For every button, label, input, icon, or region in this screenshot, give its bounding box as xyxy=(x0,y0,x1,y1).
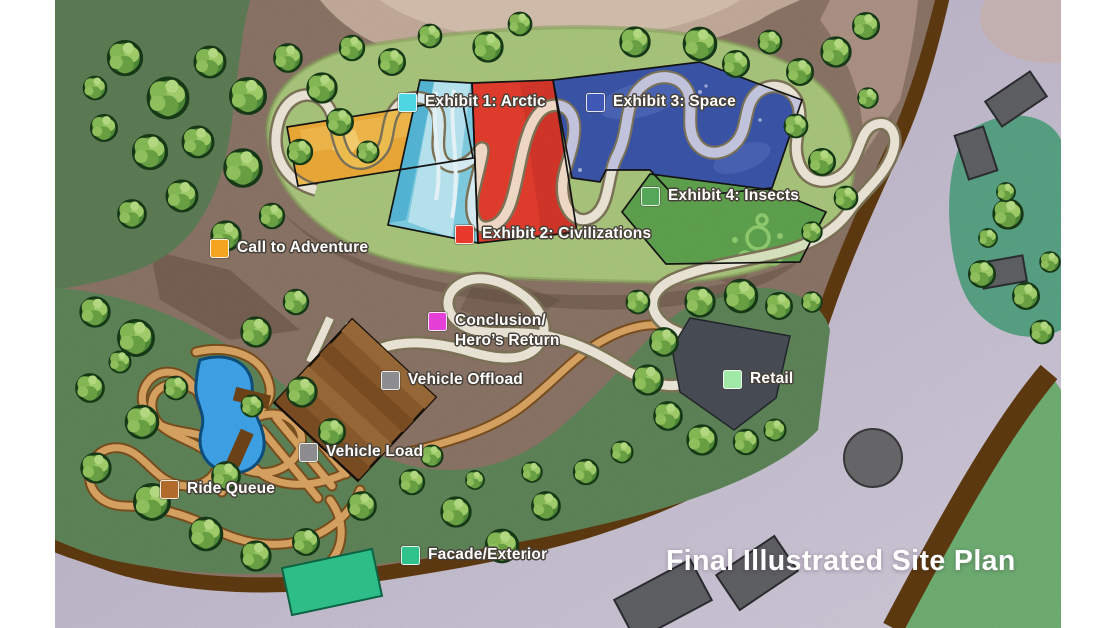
legend-item-exhibit-1-arctic: Exhibit 1: Arctic xyxy=(398,93,546,112)
legend-swatch xyxy=(398,93,417,112)
legend-item-vehicle-offload: Vehicle Offload xyxy=(381,371,523,390)
legend-label-line2: Hero’s Return xyxy=(455,332,560,349)
legend-label: Vehicle Load xyxy=(326,443,423,460)
legend-label: Exhibit 3: Space xyxy=(613,93,736,110)
legend-label: Exhibit 1: Arctic xyxy=(425,93,546,110)
legend-swatch xyxy=(428,312,447,331)
legend-swatch xyxy=(401,546,420,565)
legend-label: Vehicle Offload xyxy=(408,371,523,388)
legend-item-exhibit-2-civilizations: Exhibit 2: Civilizations xyxy=(455,225,651,244)
legend-item-call-to-adventure: Call to Adventure xyxy=(210,239,368,258)
legend-label-line1: Conclusion/ xyxy=(455,312,546,329)
legend-swatch xyxy=(381,371,400,390)
legend-item-exhibit-4-insects: Exhibit 4: Insects xyxy=(641,187,799,206)
legend-swatch xyxy=(160,480,179,499)
legend-label: Conclusion/Hero’s Return xyxy=(455,312,560,349)
legend-item-conclusion-heros-return: Conclusion/Hero’s Return xyxy=(428,312,560,349)
legend-item-ride-queue: Ride Queue xyxy=(160,480,275,499)
legend-item-facade-exterior: Facade/Exterior xyxy=(401,546,547,565)
legend-label: Retail xyxy=(750,370,793,387)
legend-label: Call to Adventure xyxy=(237,239,368,256)
page-title: Final Illustrated Site Plan xyxy=(666,545,1016,578)
legend-label: Exhibit 2: Civilizations xyxy=(482,225,651,242)
legend-swatch xyxy=(641,187,660,206)
legend-label: Facade/Exterior xyxy=(428,546,547,563)
legend-swatch xyxy=(299,443,318,462)
legend-swatch xyxy=(586,93,605,112)
legend-swatch xyxy=(455,225,474,244)
legend-item-retail: Retail xyxy=(723,370,793,389)
legend-item-exhibit-3-space: Exhibit 3: Space xyxy=(586,93,736,112)
legend-item-vehicle-load: Vehicle Load xyxy=(299,443,423,462)
site-plan-slide: Exhibit 1: Arctic Exhibit 3: Space Exhib… xyxy=(0,0,1116,628)
legend-swatch xyxy=(210,239,229,258)
legend-swatch xyxy=(723,370,742,389)
legend-label: Ride Queue xyxy=(187,480,275,497)
legend-label: Exhibit 4: Insects xyxy=(668,187,799,204)
